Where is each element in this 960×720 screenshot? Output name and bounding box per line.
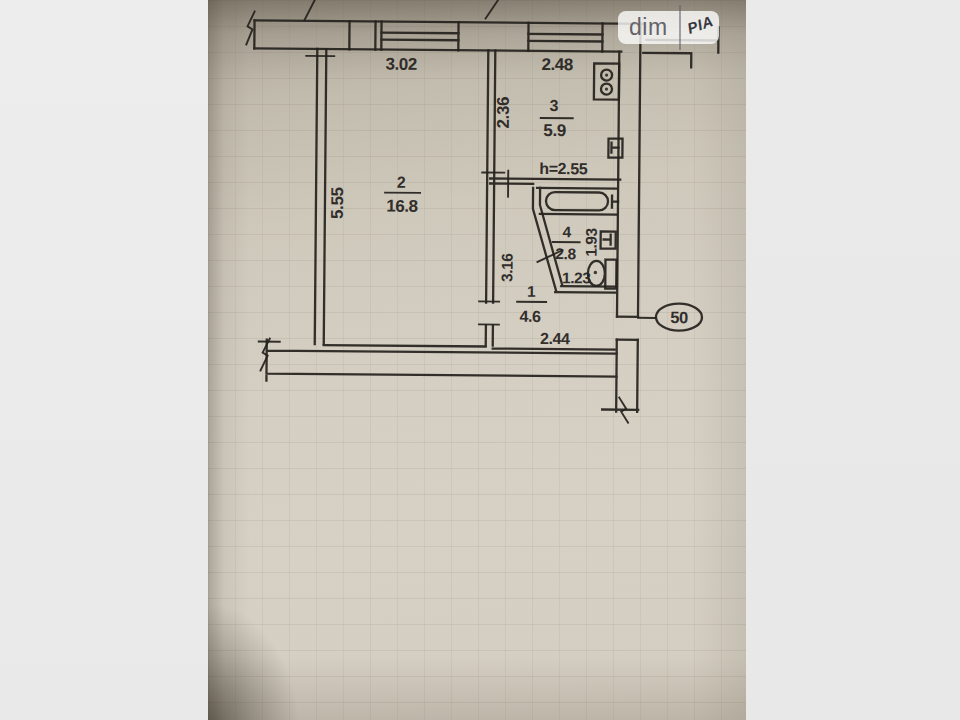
room2-number: 2 xyxy=(397,174,406,191)
photo-of-floor-plan: 50 3.02 2.48 5.55 2.36 h=2.55 1.93 1.23 … xyxy=(0,0,960,720)
dim-kitchen-width: 2.48 xyxy=(541,55,573,74)
hall-number: 1 xyxy=(527,283,536,300)
dim-kitchen-height: 2.36 xyxy=(494,97,513,129)
toilet-icon xyxy=(588,259,617,288)
bath-area: 2.8 xyxy=(555,245,576,262)
watermark-brand-text: dim xyxy=(629,14,668,41)
dim-hall-width: 2.44 xyxy=(540,330,570,347)
kitchen-number: 3 xyxy=(550,97,559,114)
dim-room2-height: 5.55 xyxy=(328,187,347,219)
window-symbols xyxy=(349,21,602,51)
exterior-walls xyxy=(251,20,718,412)
watermark-divider xyxy=(679,5,681,50)
dimension-labels: 3.02 2.48 5.55 2.36 h=2.55 1.93 1.23 3.1… xyxy=(327,53,602,347)
stove-icon xyxy=(594,63,619,99)
left-letterbox-bar xyxy=(0,0,208,720)
dim-bath-height: 1.93 xyxy=(583,227,600,256)
ceiling-height-label: h=2.55 xyxy=(539,160,588,177)
interior-walls xyxy=(315,49,622,350)
kitchen-area: 5.9 xyxy=(543,121,566,140)
washbasin-icon xyxy=(601,231,616,248)
kitchen-sink-icon xyxy=(608,139,622,158)
apartment-number: 50 xyxy=(670,308,688,326)
room2-area: 16.8 xyxy=(386,197,418,216)
right-letterbox-bar xyxy=(746,0,960,720)
dim-ria-watermark: dim РІА xyxy=(618,11,719,44)
hall-area: 4.6 xyxy=(519,308,541,325)
bath-number: 4 xyxy=(563,223,572,240)
apartment-number-badge: 50 xyxy=(656,303,702,330)
ria-logo: РІА xyxy=(685,12,716,37)
dim-hall-height: 3.16 xyxy=(498,253,515,282)
dim-bath-width: 1.23 xyxy=(562,269,591,286)
dim-room2-width: 3.02 xyxy=(385,55,417,74)
bathtub-icon xyxy=(540,192,618,215)
